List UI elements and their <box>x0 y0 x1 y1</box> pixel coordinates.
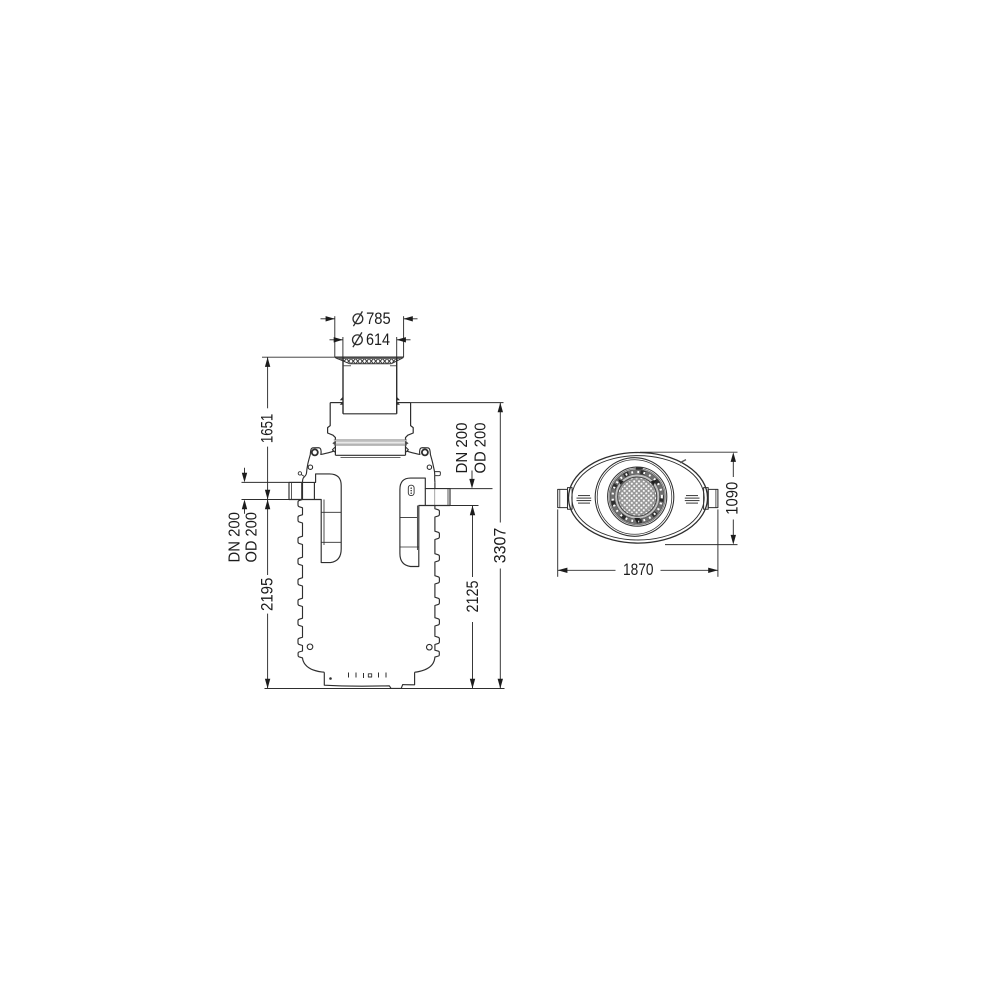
svg-text:1651: 1651 <box>258 414 276 443</box>
svg-text:DN 200: DN 200 <box>226 512 243 563</box>
svg-text:614: 614 <box>366 331 390 349</box>
svg-text:3307: 3307 <box>491 528 509 564</box>
svg-text:785: 785 <box>366 310 391 328</box>
svg-text:1090: 1090 <box>724 482 742 515</box>
svg-text:OD 200: OD 200 <box>473 422 490 473</box>
svg-text:2125: 2125 <box>464 581 482 613</box>
svg-text:DN 200: DN 200 <box>454 422 471 473</box>
svg-text:1870: 1870 <box>623 561 654 579</box>
svg-text:OD 200: OD 200 <box>244 512 261 563</box>
svg-text:2195: 2195 <box>258 578 276 612</box>
